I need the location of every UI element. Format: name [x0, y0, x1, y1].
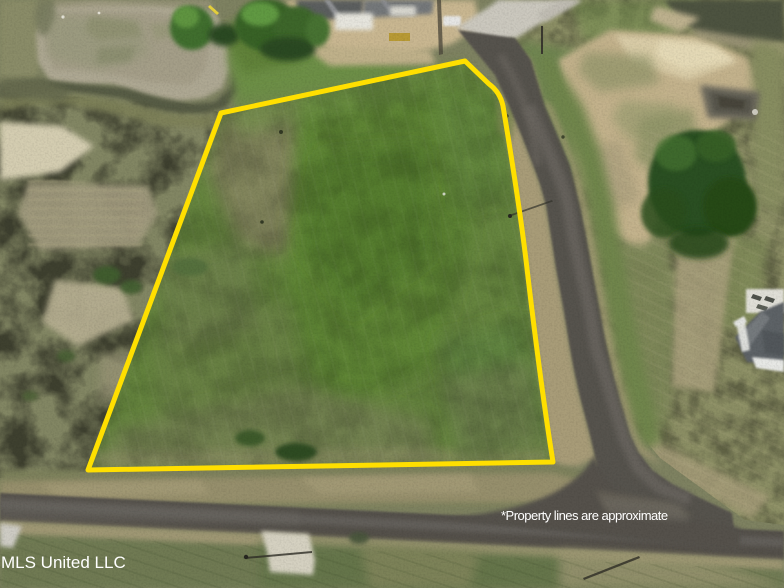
svg-text:*Property lines are approximat: *Property lines are approximate [501, 508, 668, 523]
svg-text:MLS United LLC: MLS United LLC [1, 553, 126, 572]
